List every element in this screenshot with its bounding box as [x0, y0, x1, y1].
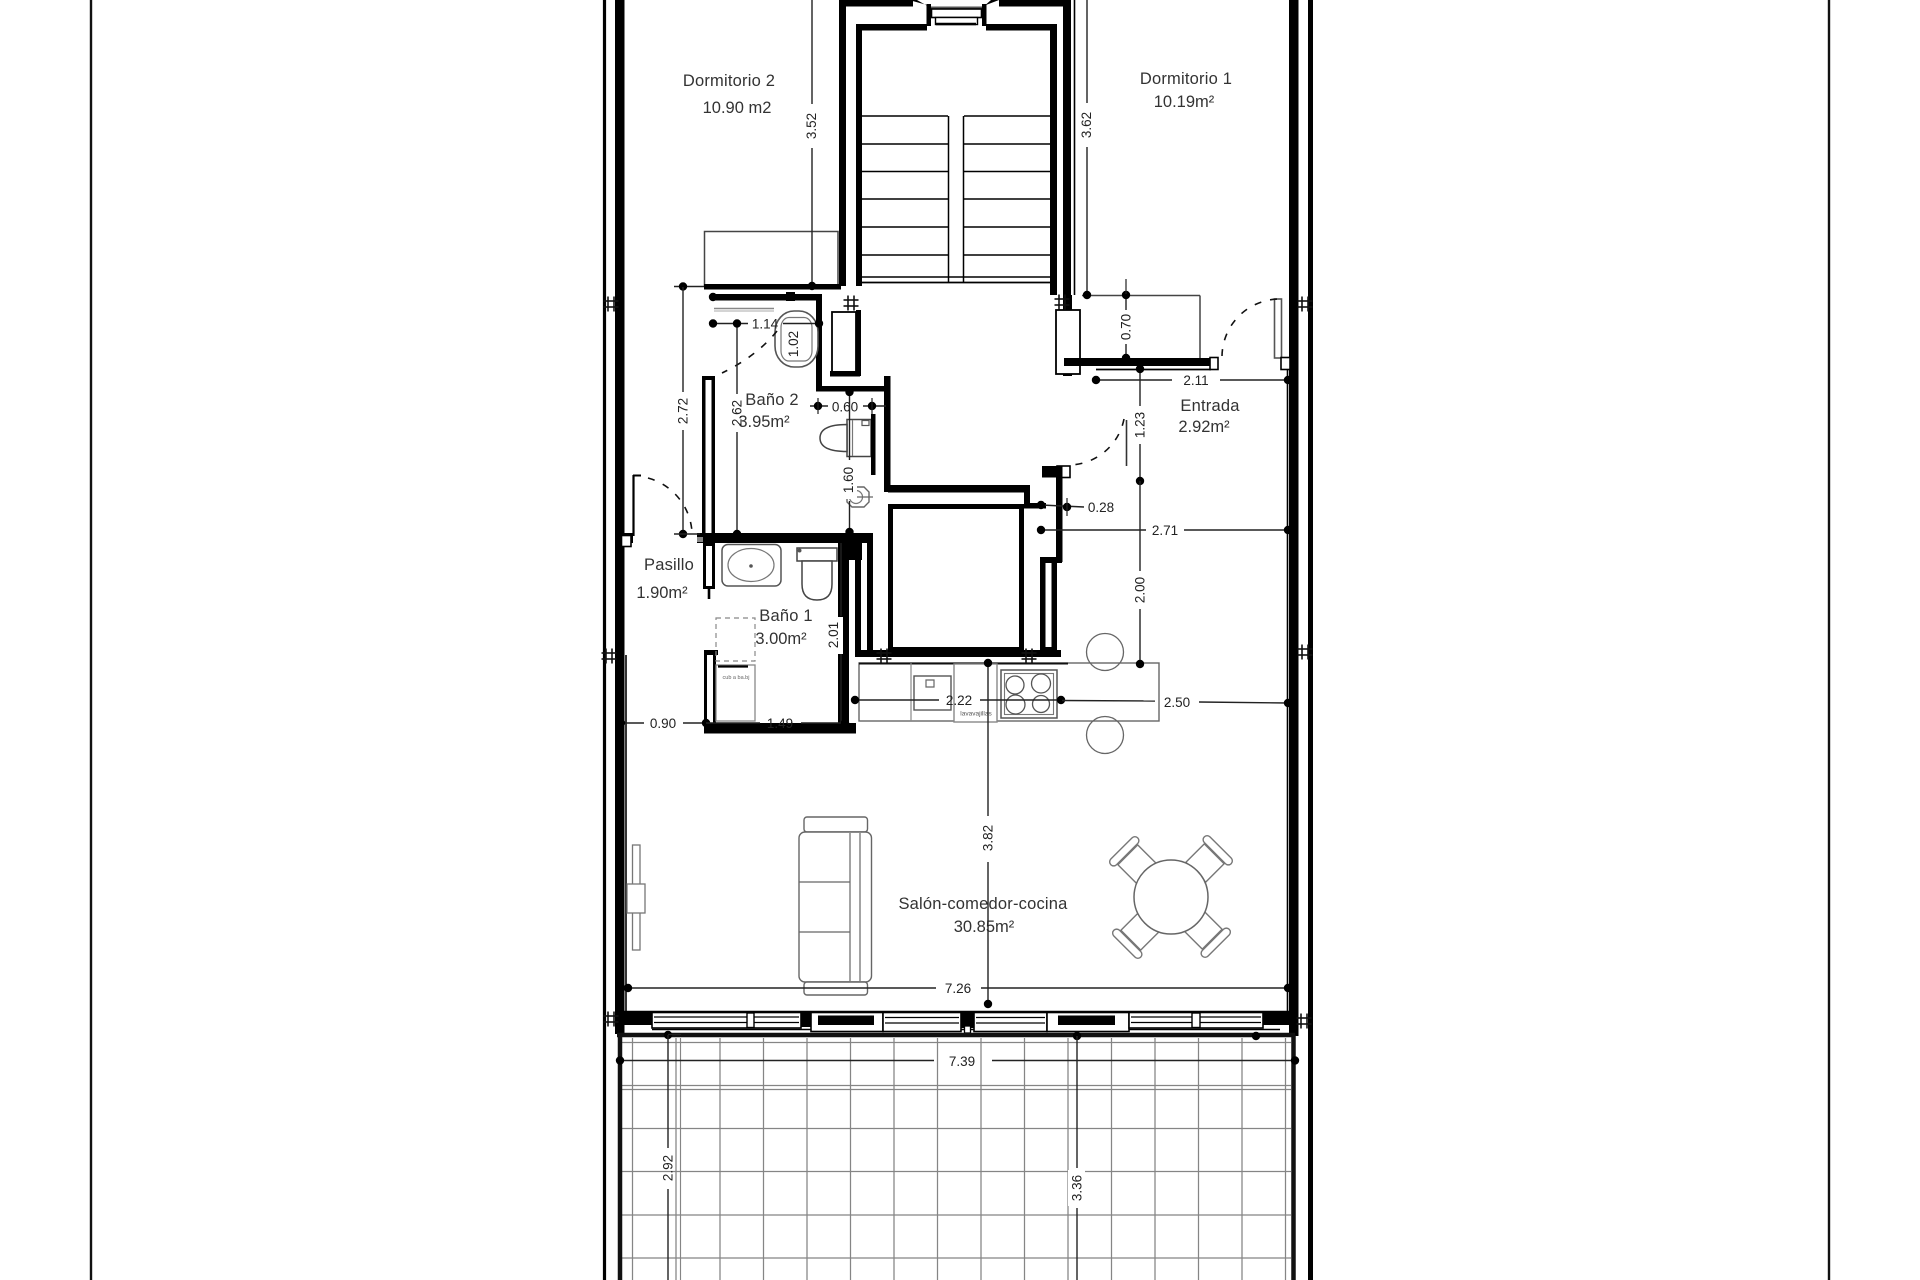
svg-text:2.71: 2.71	[1152, 523, 1178, 538]
svg-text:2.11: 2.11	[1183, 373, 1208, 388]
svg-text:2.22: 2.22	[946, 693, 972, 708]
svg-text:1.60: 1.60	[841, 467, 856, 493]
svg-text:2.50: 2.50	[1164, 695, 1190, 710]
svg-text:2.72: 2.72	[676, 398, 691, 424]
svg-text:1.14: 1.14	[752, 317, 779, 332]
svg-text:0.28: 0.28	[1088, 500, 1114, 515]
svg-text:3.82: 3.82	[981, 825, 996, 851]
svg-text:10.90 m2: 10.90 m2	[703, 99, 772, 117]
svg-text:Entrada: Entrada	[1180, 397, 1240, 415]
svg-text:3.36: 3.36	[1070, 1175, 1085, 1201]
svg-text:1.90m²: 1.90m²	[636, 584, 688, 602]
svg-text:Pasillo: Pasillo	[644, 556, 694, 574]
svg-text:10.19m²: 10.19m²	[1154, 93, 1215, 111]
svg-text:Baño 2: Baño 2	[745, 391, 799, 409]
svg-text:Dormitorio 1: Dormitorio 1	[1140, 70, 1232, 88]
svg-text:Baño 1: Baño 1	[759, 607, 813, 625]
svg-text:2.92m²: 2.92m²	[1178, 418, 1230, 436]
svg-text:7.39: 7.39	[949, 1054, 975, 1069]
svg-text:1.23: 1.23	[1133, 412, 1148, 438]
svg-text:cub a ba.bj: cub a ba.bj	[723, 675, 750, 681]
svg-text:2.01: 2.01	[826, 622, 841, 648]
svg-text:Dormitorio 2: Dormitorio 2	[683, 72, 775, 90]
svg-text:7.26: 7.26	[945, 981, 971, 996]
svg-text:30.85m²: 30.85m²	[954, 918, 1015, 936]
svg-text:3.62: 3.62	[1079, 112, 1094, 138]
svg-text:2.00: 2.00	[1133, 577, 1148, 603]
svg-text:3.00m²: 3.00m²	[755, 630, 807, 648]
svg-text:Salón-comedor-cocina: Salón-comedor-cocina	[898, 895, 1068, 913]
svg-text:2.62: 2.62	[730, 400, 745, 426]
svg-text:3.52: 3.52	[804, 113, 819, 139]
svg-text:3.95m²: 3.95m²	[738, 413, 790, 431]
svg-text:2.92: 2.92	[661, 1155, 676, 1181]
svg-text:1.02: 1.02	[786, 331, 801, 357]
svg-text:0.90: 0.90	[650, 716, 676, 731]
svg-text:0.60: 0.60	[832, 400, 858, 415]
svg-text:1.49: 1.49	[767, 716, 793, 731]
svg-text:0.70: 0.70	[1119, 314, 1134, 340]
